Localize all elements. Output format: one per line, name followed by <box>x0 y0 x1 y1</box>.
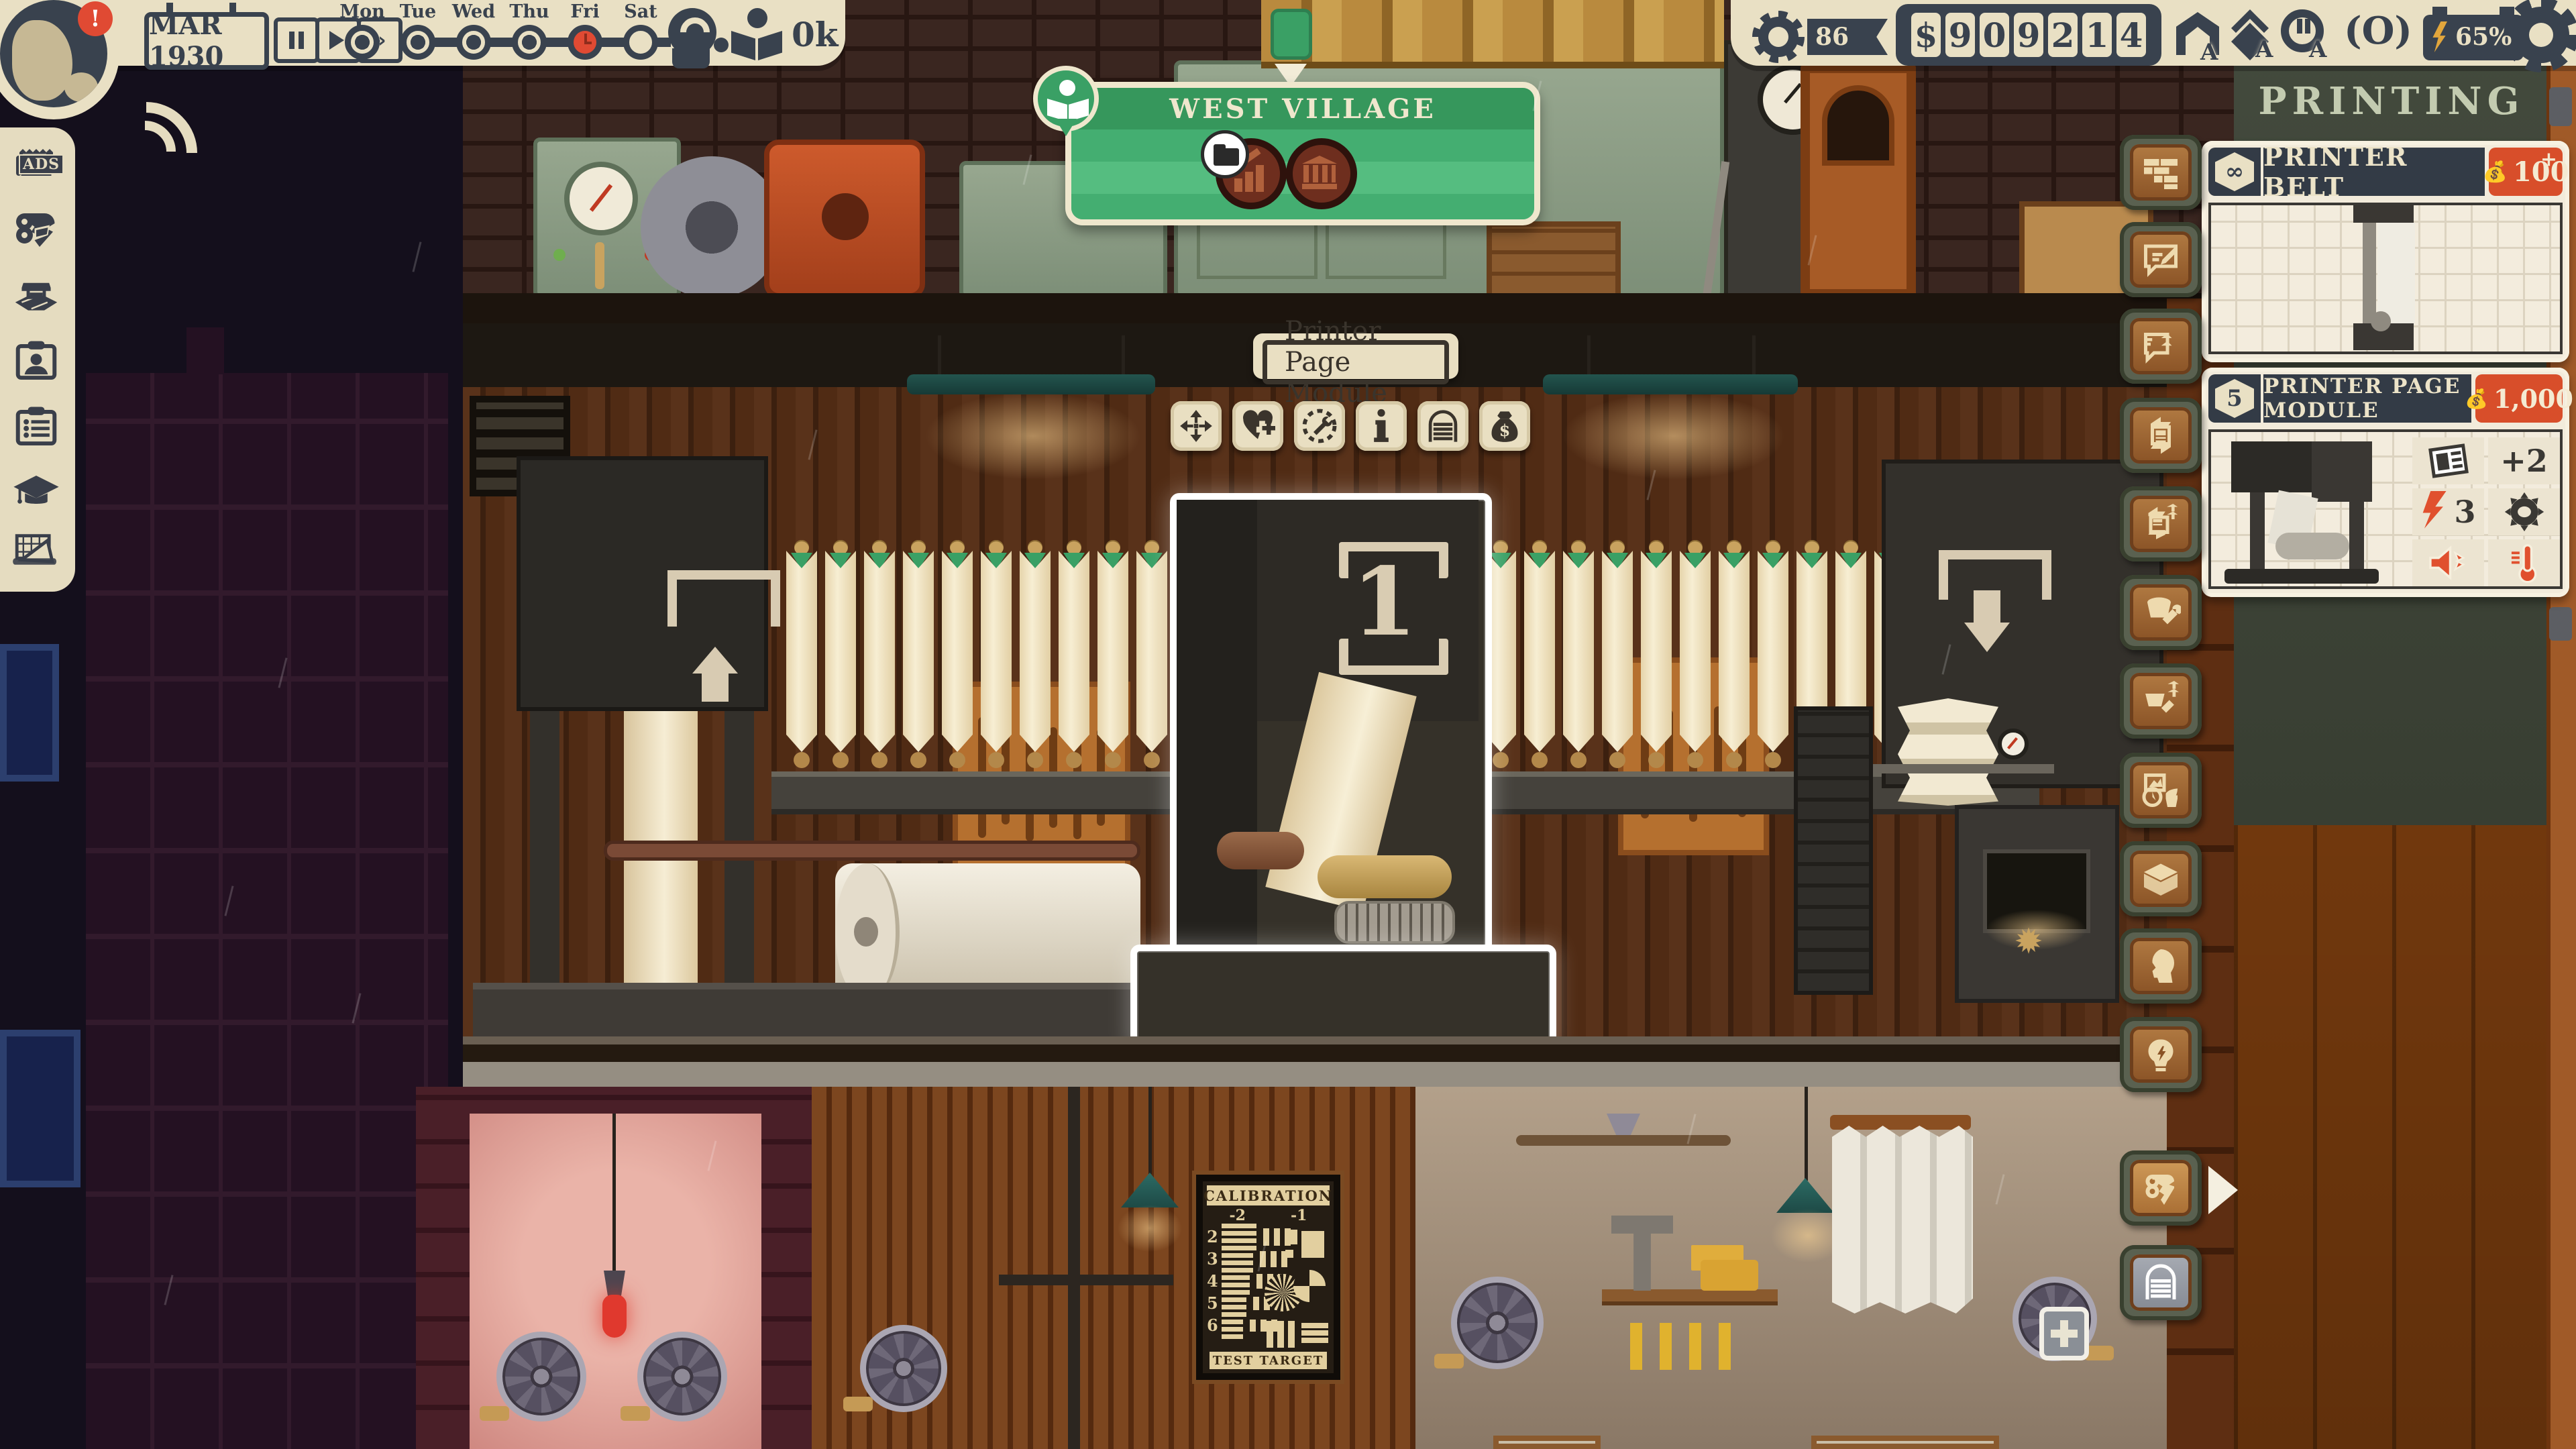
ads-label: ADS <box>19 154 64 174</box>
dryer-gear-icon: ✹ <box>2008 922 2049 962</box>
tool-bulb-icon[interactable] <box>2120 1017 2202 1092</box>
money-digit: 4 <box>2116 13 2146 57</box>
district-title-bar: WEST VILLAGE <box>1071 88 1534 129</box>
sidebar-staff-card-icon[interactable] <box>4 331 68 389</box>
stat-thermometer-icon <box>2488 539 2560 586</box>
folder-badge[interactable] <box>1201 130 1249 178</box>
infinity-badge: ∞ <box>2215 152 2254 191</box>
card-badge-box: ∞ <box>2208 148 2261 196</box>
currency-symbol: $ <box>1911 13 1941 57</box>
tool-newspaper-upgrade-icon[interactable] <box>2120 486 2202 561</box>
district-title: WEST VILLAGE <box>1169 93 1436 125</box>
hanging-paper <box>1678 540 1712 768</box>
lamp-glow <box>1563 392 1784 480</box>
action-money-bag-icon[interactable]: $ <box>1479 401 1530 451</box>
reputation-ribbon: 86 <box>1807 19 1888 55</box>
hanging-paper <box>941 540 974 768</box>
bolt-icon <box>2431 21 2447 52</box>
bank-coin[interactable] <box>1286 138 1357 209</box>
hanging-paper <box>1562 540 1595 768</box>
reader-icon <box>730 8 784 64</box>
day-fri: Fri <box>557 1 613 60</box>
day-tue: Tue <box>390 1 446 60</box>
card-price: 💰 1,000 <box>2475 374 2563 423</box>
hanging-sheets <box>1832 1126 1973 1313</box>
day-sat: Sat <box>612 1 669 60</box>
svg-text:$: $ <box>1499 421 1511 440</box>
hanging-paper <box>1018 540 1052 768</box>
district-pin[interactable] <box>1033 66 1099 131</box>
folded-paper-stack <box>1898 698 1998 806</box>
basement-lamp-glow <box>1118 1205 1182 1252</box>
side-panel-wood <box>2234 825 2576 1449</box>
intake-machine[interactable] <box>517 456 768 1053</box>
red-bulb-cord <box>612 1114 616 1273</box>
add-room-badge[interactable] <box>2039 1307 2089 1360</box>
hanging-paper <box>902 540 935 768</box>
home-icon[interactable]: A <box>2176 12 2220 56</box>
roller-bar <box>604 841 1140 861</box>
coil-hub <box>822 193 869 240</box>
stat-value: +2 <box>2488 437 2560 484</box>
picture-frame <box>1493 1436 1601 1449</box>
hanging-paper <box>1640 540 1673 768</box>
sidebar-grad-cap-icon[interactable] <box>4 463 68 521</box>
action-arch-icon[interactable] <box>1417 401 1468 451</box>
action-info-icon[interactable] <box>1356 401 1407 451</box>
module-roller-gold <box>1318 855 1452 898</box>
date-plaque: MAR 1930 <box>144 12 269 70</box>
card-printer-page-module[interactable]: 5 PRINTER PAGE MODULE 💰 1,000 +23 <box>2202 368 2569 597</box>
picture-frame <box>1811 1436 1999 1449</box>
module-tooltip: Printer Page Module <box>1253 333 1458 379</box>
sidebar-blueprint-icon[interactable] <box>4 521 68 578</box>
floor-beam <box>463 1036 2234 1063</box>
pendant-cord <box>1805 1087 1808 1181</box>
pipe-tee <box>999 1275 1173 1285</box>
card-title: PRINTER PAGE MODULE <box>2263 374 2471 423</box>
calibration-footer: TEST TARGET <box>1210 1352 1327 1369</box>
tool-decor-icon[interactable] <box>2120 753 2202 828</box>
pause-button[interactable] <box>274 17 319 63</box>
eye-icon[interactable]: (O) <box>2341 9 2415 56</box>
status-badge: A <box>2309 36 2326 63</box>
day-wed: Wed <box>445 1 502 60</box>
cal-hlines <box>1301 1321 1328 1345</box>
hanging-gloves <box>1630 1323 1739 1370</box>
tool-write-upgrade-icon[interactable] <box>2120 309 2202 384</box>
lamp-rod <box>938 335 941 377</box>
chimney <box>186 327 224 374</box>
stat-gear-icon <box>2488 488 2560 535</box>
paper-roll-big[interactable] <box>835 863 1140 1001</box>
calibration-title: CALIBRATION <box>1207 1185 1330 1205</box>
stat-newspaper-icon <box>2412 437 2484 484</box>
calibration-poster: CALIBRATION -2 -1 23456 TEST TARGET <box>1196 1175 1340 1380</box>
card-price: 💰 100 + <box>2489 148 2563 196</box>
module-roller-brown <box>1217 832 1304 869</box>
tool-build-rooms-icon[interactable] <box>2120 135 2202 210</box>
fan <box>860 1325 947 1412</box>
up-arrow-icon <box>692 624 738 674</box>
fan <box>637 1332 727 1421</box>
card-printer-belt[interactable]: ∞ PRINTER BELT 💰 100 + <box>2202 141 2569 362</box>
action-move-icon[interactable] <box>1171 401 1222 451</box>
card-title: PRINTER BELT <box>2263 148 2485 196</box>
lamp-rod <box>1587 335 1591 377</box>
money-bag-icon: 💰 <box>2465 388 2488 410</box>
upper-door[interactable] <box>1801 64 1916 299</box>
settings-gear-icon[interactable] <box>2504 0 2576 72</box>
lamp-rod <box>1122 335 1125 377</box>
panel-header: PRINTING <box>2234 79 2549 123</box>
sidebar-task-list-icon[interactable] <box>4 397 68 455</box>
day-mon: Mon <box>334 1 390 60</box>
game-screen: ✹ 1 CALIBRATION -2 -1 23456 <box>0 0 2576 1449</box>
cabinet <box>1794 706 1873 995</box>
price-plus: + <box>2540 148 2557 171</box>
action-heart-plus-icon[interactable] <box>1232 401 1283 451</box>
tool-bucket-upgrade-icon[interactable] <box>2120 663 2202 739</box>
city-icon[interactable]: A <box>2281 9 2329 58</box>
tool-staff-head-icon[interactable] <box>2120 928 2202 1004</box>
pages-icon[interactable]: A <box>2229 9 2275 58</box>
hinge <box>2549 607 2572 641</box>
level-badge: 5 <box>2215 379 2254 418</box>
readers-count: 0k <box>792 15 852 54</box>
cal-checker <box>1293 1270 1326 1302</box>
hanging-paper <box>1601 540 1634 768</box>
tool-newspaper-cycle-icon[interactable] <box>2120 398 2202 473</box>
hanging-paper <box>1057 540 1091 768</box>
money-digit: 2 <box>2048 13 2078 57</box>
ceiling-fan <box>1516 1114 1731 1154</box>
wooden-crate <box>1487 221 1621 299</box>
up-arrow-sign <box>667 570 780 627</box>
dryer-machine[interactable]: ✹ <box>1955 805 2119 1003</box>
hanging-paper <box>1135 540 1169 768</box>
brass-pipes <box>1261 0 1724 68</box>
paper-coil-red <box>764 140 925 299</box>
sidebar-ads-icon[interactable]: ADS <box>4 137 68 195</box>
status-badge: A <box>2200 39 2218 66</box>
indicator-light-green <box>553 249 566 261</box>
shop-lamp <box>1543 374 1798 394</box>
hanging-paper <box>979 540 1013 768</box>
lit-window <box>0 644 59 782</box>
card-module-image: +23 <box>2208 429 2563 589</box>
tool-write-article-icon[interactable] <box>2120 222 2202 297</box>
lever <box>595 242 604 289</box>
module-marker-bracket-bottom <box>1339 639 1448 675</box>
lamp-glow <box>926 392 1140 480</box>
down-arrow-icon <box>1964 623 2010 675</box>
selected-module-base[interactable] <box>1130 945 1556 1052</box>
module-tooltip-label: Printer Page Module <box>1285 316 1427 409</box>
shelf <box>1873 764 2054 773</box>
lit-window <box>0 1030 80 1187</box>
basement-lamp-cord <box>1148 1087 1152 1174</box>
bell-icon[interactable] <box>663 5 723 66</box>
money-digit: 0 <box>1980 13 2009 57</box>
reputation-gear-icon[interactable] <box>1752 11 1805 63</box>
building-silhouette <box>86 373 448 1449</box>
money-digit: 9 <box>1945 13 1975 57</box>
money-digit: 1 <box>2082 13 2112 57</box>
red-bulb <box>602 1295 627 1338</box>
tool-arch-door-icon[interactable] <box>2120 1245 2202 1320</box>
cal-squares <box>1285 1230 1324 1262</box>
card-badge-box: 5 <box>2208 374 2261 423</box>
calibration-col: -1 <box>1291 1207 1307 1224</box>
tool-storage-box-icon[interactable] <box>2120 841 2202 916</box>
module-marker-number: 1 <box>1339 555 1430 649</box>
hanging-paper <box>1756 540 1790 768</box>
sidebar-press-icon[interactable] <box>4 201 68 259</box>
money-counter: $ 909214 <box>1896 4 2161 66</box>
wall-fan <box>1451 1277 1544 1369</box>
stat-speaker-icon <box>2412 539 2484 586</box>
machine-base <box>473 983 1157 1043</box>
stat-bolt-icon: 3 <box>2412 488 2484 535</box>
signal-arcs-icon <box>95 102 182 189</box>
printed-sheet <box>1334 901 1455 944</box>
pipe <box>1068 1087 1080 1449</box>
door-window <box>1822 85 1894 166</box>
status-badge: A <box>2255 36 2273 63</box>
flywheel <box>641 156 783 299</box>
alert-badge[interactable]: ! <box>78 1 113 36</box>
hanging-paper <box>785 540 818 768</box>
hinge <box>2549 87 2572 126</box>
tool-bucket-wrench-icon[interactable] <box>2120 575 2202 650</box>
action-dial-wrench-icon[interactable] <box>1294 401 1345 451</box>
sidebar-kiosk-map-icon[interactable] <box>4 267 68 325</box>
tool-paper-rolls-icon[interactable] <box>2120 1150 2202 1226</box>
sponge-blocks <box>1701 1260 1758 1291</box>
work-shelf <box>1602 1289 1778 1305</box>
active-tool-pointer <box>2208 1166 2262 1214</box>
module-stats: +23 <box>2412 437 2560 586</box>
lamp-rod <box>1752 335 1756 377</box>
hanging-paper <box>1523 540 1556 768</box>
concrete-strip <box>463 1062 2234 1087</box>
money-bag-icon: 💰 <box>2483 160 2508 184</box>
money-digit: 9 <box>2014 13 2043 57</box>
district-pin-small <box>1271 9 1312 60</box>
hanging-paper <box>1717 540 1751 768</box>
hanging-paper <box>1096 540 1130 768</box>
hanging-paper <box>824 540 857 768</box>
shop-lamp <box>907 374 1155 394</box>
day-thu: Thu <box>501 1 557 60</box>
card-belt-image <box>2208 203 2563 354</box>
cal-bars <box>1267 1321 1295 1348</box>
hanging-paper <box>863 540 896 768</box>
fan <box>496 1332 586 1421</box>
